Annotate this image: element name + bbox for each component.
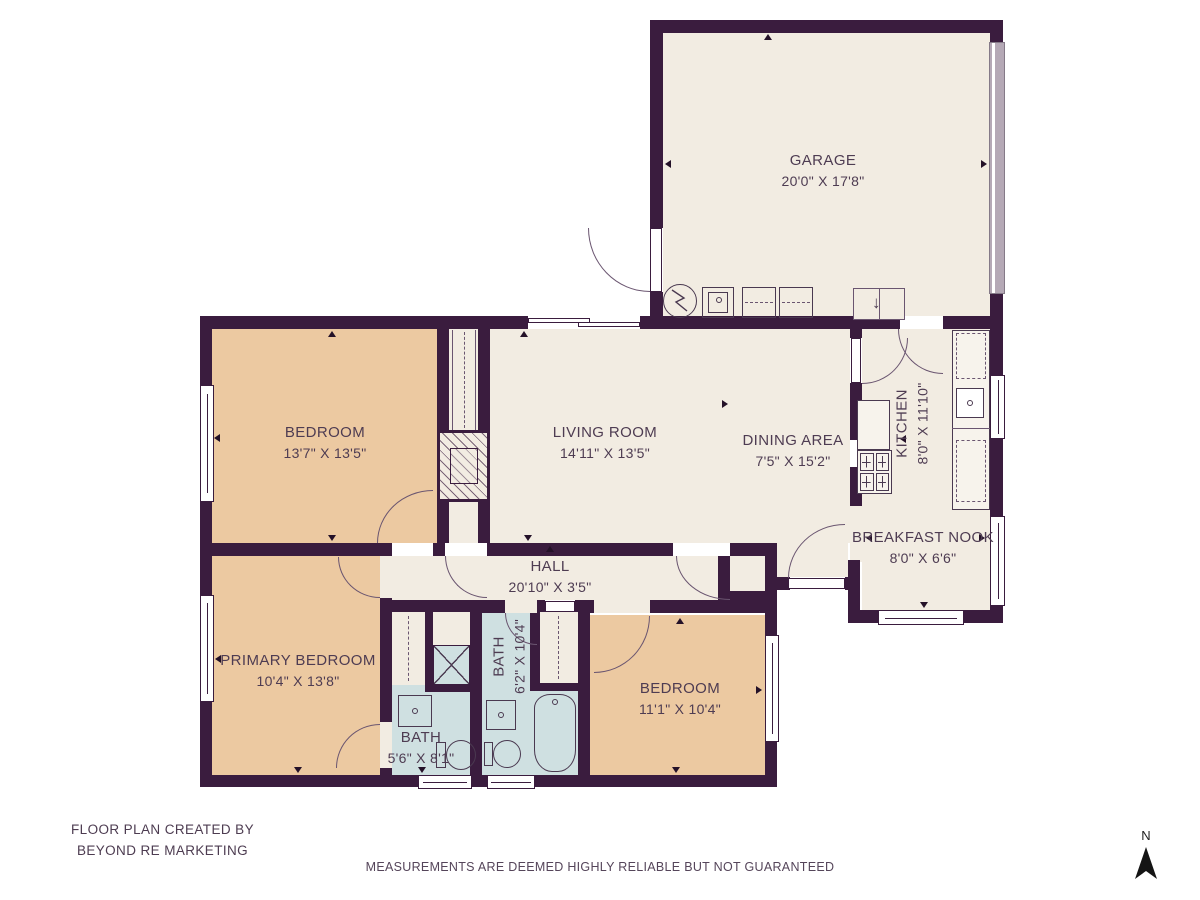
pantry-dashed [956,440,986,502]
room-label-dining-area: DINING AREA 7'5" X 15'2" [683,432,903,469]
dimension-marker [418,767,426,773]
dimension-marker [722,400,728,408]
room-label-breakfast-nook: BREAKFAST NOOK 8'0" X 6'6" [823,529,1023,566]
wall [765,543,777,603]
wall [478,500,490,543]
sliding-door-panel [578,322,640,327]
room-label-bath-1: BATH 5'6" X 8'1" [331,729,511,766]
water-heater [663,284,697,318]
wall [650,20,1003,33]
door-opening [900,316,943,329]
window [200,385,214,502]
floor-plan: ↓ [0,0,1200,900]
wall [478,328,490,430]
wall [845,577,853,590]
room-dims: 5'6" X 8'1" [331,750,511,766]
faucet-dot [412,708,418,714]
dimension-marker [920,602,928,608]
wall [380,768,392,780]
faucet-dot [716,297,722,303]
door-opening [445,543,487,556]
room-name: BEDROOM [570,680,790,697]
room-dims: 11'1" X 10'4" [570,701,790,717]
door-opening [594,600,650,613]
window [487,775,535,789]
door-leaf [650,228,662,292]
room-label-garage: GARAGE 20'0" X 17'8" [713,152,933,189]
burner-icon [876,473,890,491]
dimension-marker [676,618,684,624]
washer-door-line [745,302,773,303]
burner-icon [860,473,874,491]
door-opening [673,543,730,556]
room-dims: 6'2" X 10'4" [512,587,528,727]
compass-label: N [1128,828,1164,843]
room-name: LIVING ROOM [495,424,715,441]
door-opening [392,543,433,556]
upper-cabinet-dashed [956,333,986,379]
room-name: PRIMARY BEDROOM [188,652,408,669]
wall [650,20,663,228]
room-dims: 20'10" X 3'5" [440,579,660,595]
dryer-door-line [782,302,810,303]
room-name: DINING AREA [683,432,903,449]
room-dims: 8'0" X 11'10" [915,354,931,494]
dimension-marker [328,535,336,541]
north-arrow: N [1128,828,1164,884]
door-opening [380,556,392,598]
window [878,610,964,625]
credit-text: FLOOR PLAN CREATED BY BEYOND RE MARKETIN… [55,820,270,862]
closet-rod-line [408,616,409,681]
room-dims: 20'0" X 17'8" [713,173,933,189]
closet-rod-line [558,616,559,679]
room-label-bedroom-1: BEDROOM 13'7" X 13'5" [215,424,435,461]
dimension-marker [764,34,772,40]
room-name: HALL [440,558,660,575]
coat-closet-floor [730,556,765,591]
dimension-marker [294,767,302,773]
room-name: BEDROOM [215,424,435,441]
room-label-living-room: LIVING ROOM 14'11" X 13'5" [495,424,715,461]
step-down-arrow-icon: ↓ [872,294,881,311]
hall-closet [540,612,578,683]
counter-divider [952,428,990,429]
fireplace-firebox [450,448,478,484]
wall [487,543,673,556]
door-swing-arc [588,228,650,292]
dimension-marker [672,767,680,773]
dimension-marker [981,160,987,168]
garage-door [989,42,1005,294]
dimension-marker [665,160,671,168]
door-leaf [851,338,861,383]
window [990,375,1005,439]
closet-rod-line [464,332,465,428]
room-dims: 8'0" X 6'6" [823,550,1023,566]
disclaimer-text: MEASUREMENTS ARE DEEMED HIGHLY RELIABLE … [290,860,910,874]
room-name: KITCHEN [894,354,911,494]
water-heater-zigzag-icon [664,285,695,316]
tub-faucet-dot [552,699,558,705]
room-label-hall: HALL 20'10" X 3'5" [440,558,660,595]
shower [433,645,470,685]
credit-line-2: BEYOND RE MARKETING [55,841,270,862]
room-name: BATH [491,587,508,727]
room-name: BATH [331,729,511,746]
room-dims: 13'7" X 13'5" [215,445,435,461]
credit-line-1: FLOOR PLAN CREATED BY [55,820,270,841]
dimension-marker [328,331,336,337]
window [418,775,472,789]
wall [425,612,433,685]
closet-door-leaf [545,601,575,612]
room-dims: 14'11" X 13'5" [495,445,715,461]
entry-door-leaf [788,578,845,589]
room-name: GARAGE [713,152,933,169]
room-dims: 7'5" X 15'2" [683,453,903,469]
room-label-bedroom-2: BEDROOM 11'1" X 10'4" [570,680,790,717]
room-label-kitchen: KITCHEN 8'0" X 11'10" [894,354,931,494]
shower-alcove [433,612,470,645]
wall [433,543,445,556]
room-dims: 10'4" X 13'8" [188,673,408,689]
dimension-marker [546,546,554,552]
faucet-dot [967,400,973,406]
room-label-bath-2: BATH 6'2" X 10'4" [491,587,528,727]
wall [200,543,392,556]
dimension-marker [520,331,528,337]
wall [848,560,860,622]
room-name: BREAKFAST NOOK [823,529,1023,546]
dimension-marker [524,535,532,541]
north-arrow-icon [1133,845,1159,881]
room-label-primary-bedroom: PRIMARY BEDROOM 10'4" X 13'8" [188,652,408,689]
